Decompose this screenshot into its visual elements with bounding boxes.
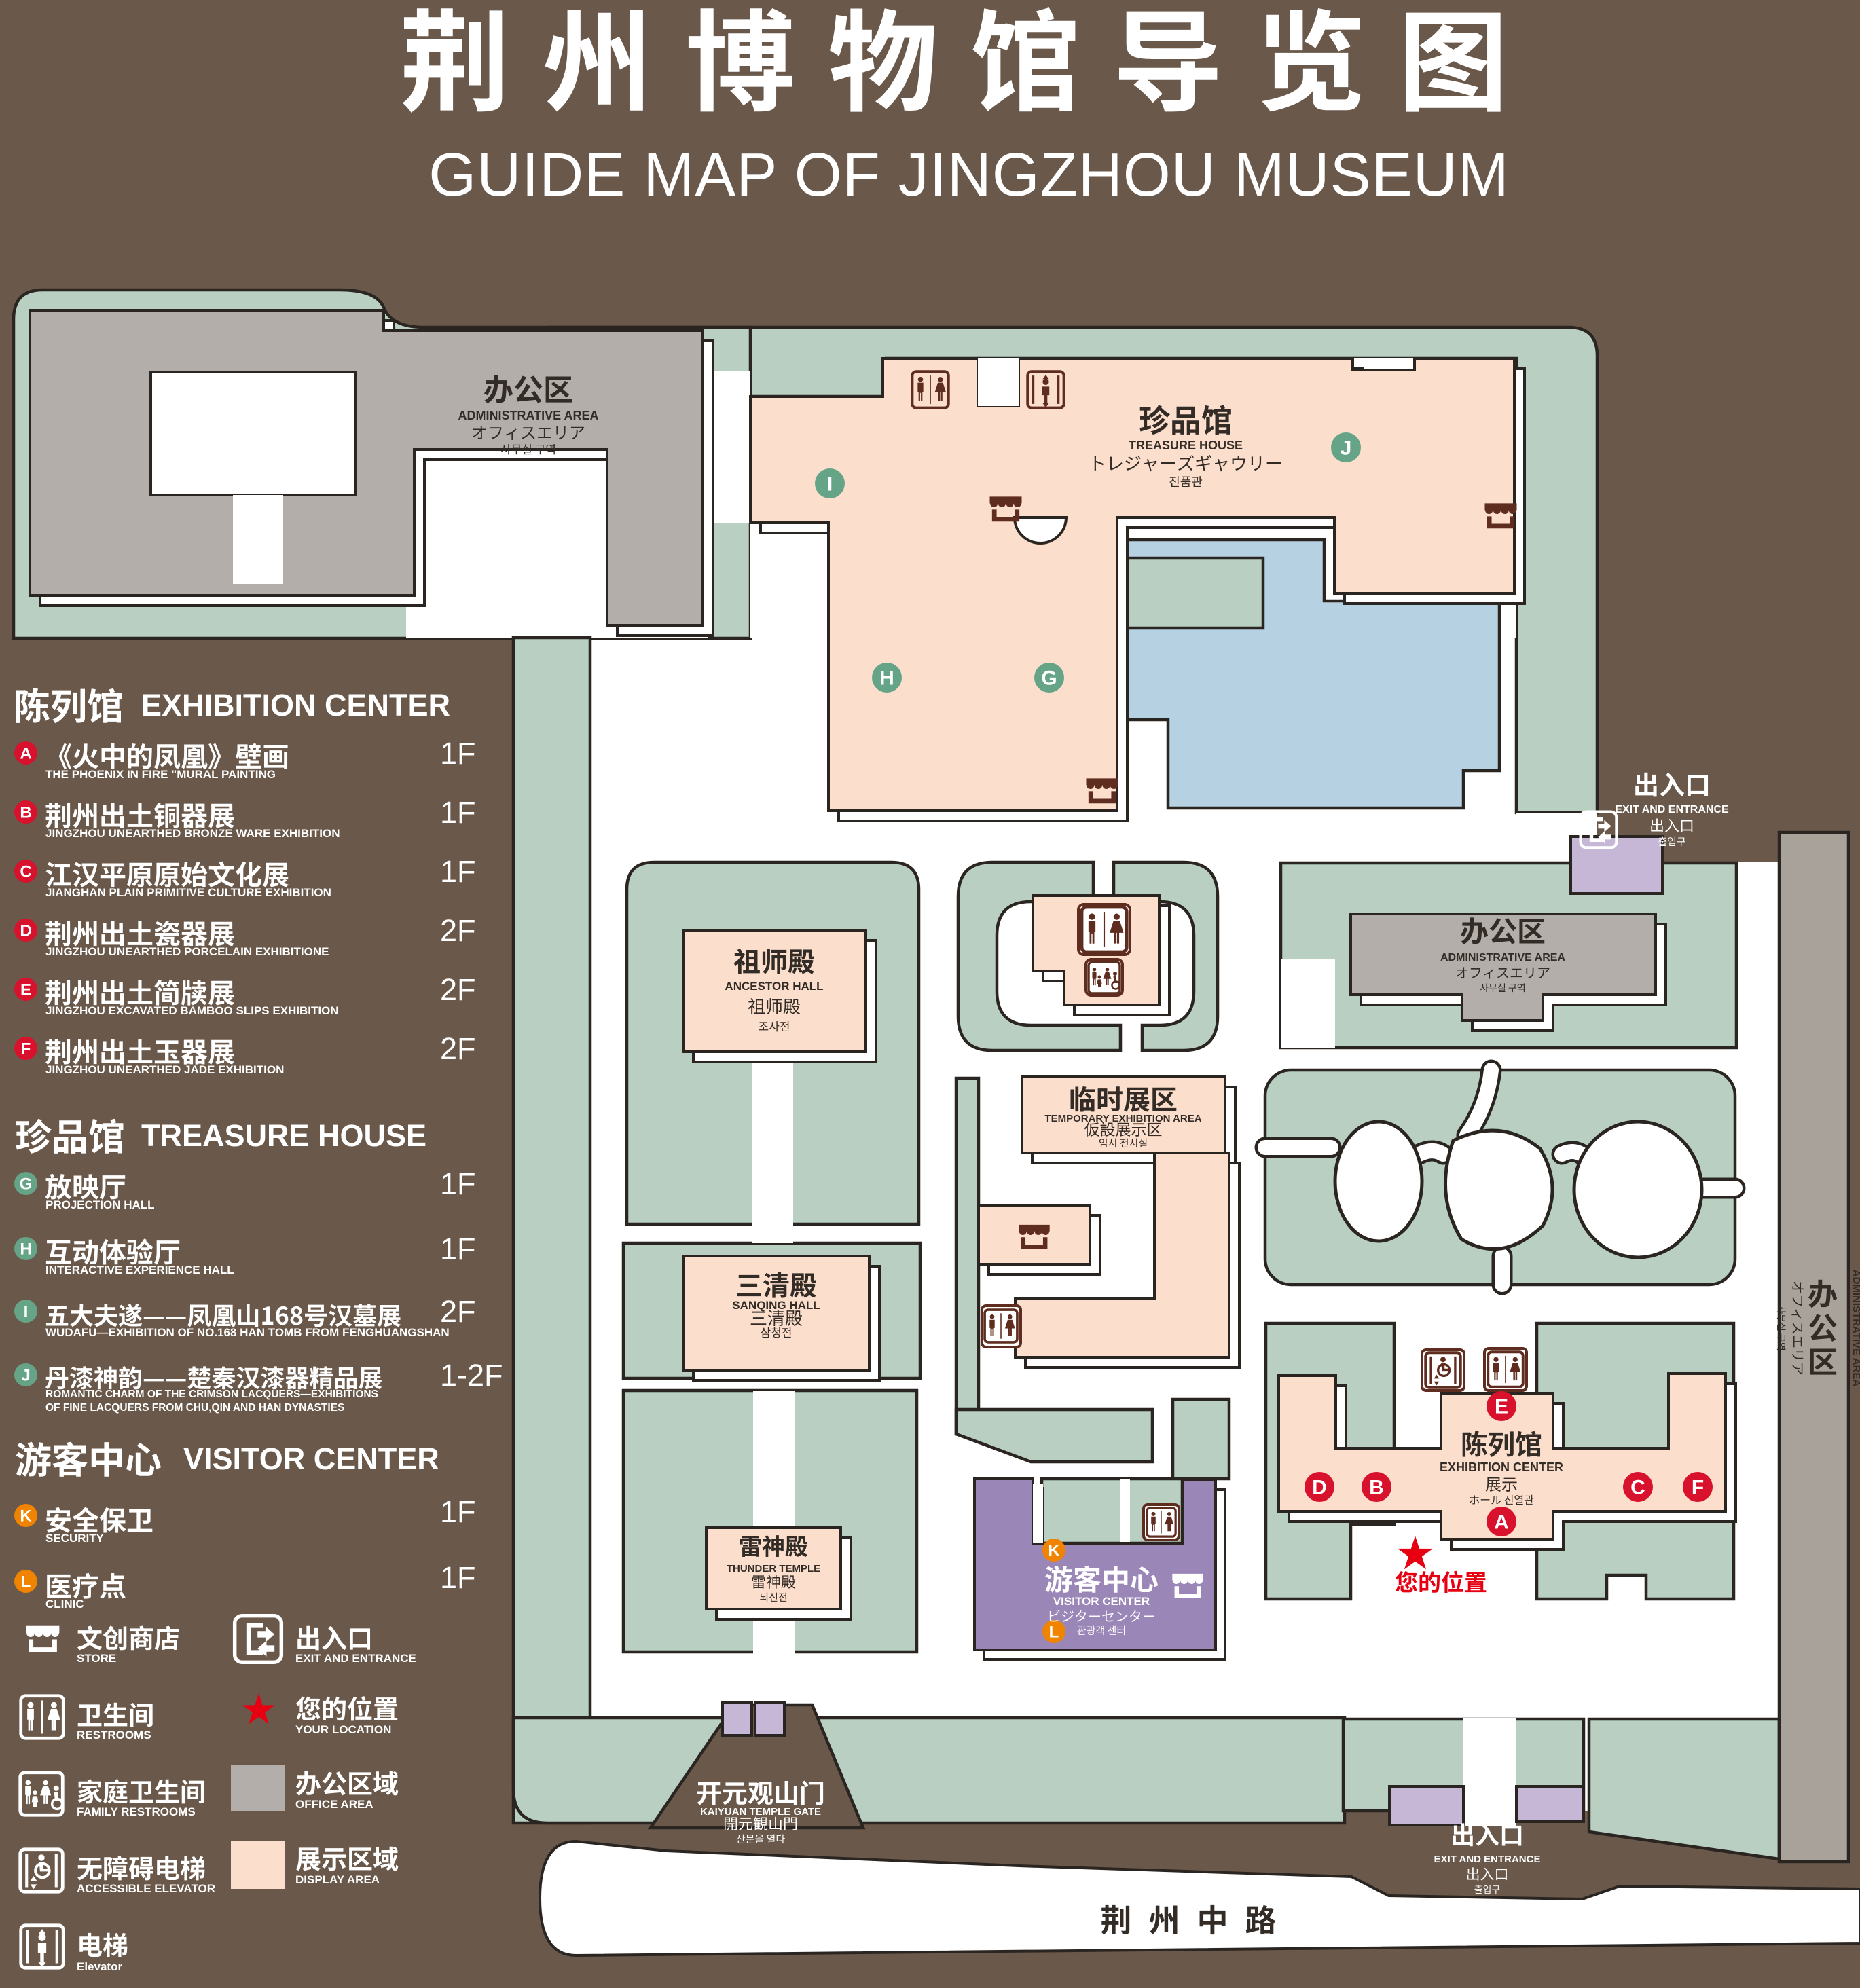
svg-text:THE PHOENIX IN FIRE "MURAL PAI: THE PHOENIX IN FIRE "MURAL PAINTING (45, 768, 276, 781)
svg-text:GUIDE MAP OF JINGZHOU MUSEUM: GUIDE MAP OF JINGZHOU MUSEUM (428, 141, 1509, 209)
svg-text:ANCESTOR HALL: ANCESTOR HALL (725, 980, 823, 993)
svg-text:K: K (1048, 1542, 1060, 1560)
svg-text:SANQING HALL: SANQING HALL (732, 1299, 820, 1312)
svg-text:TREASURE HOUSE: TREASURE HOUSE (141, 1118, 426, 1153)
svg-text:C: C (1630, 1477, 1645, 1499)
svg-text:WUDAFU—EXHIBITION OF NO.168 HA: WUDAFU—EXHIBITION OF NO.168 HAN TOMB FRO… (45, 1326, 450, 1339)
svg-text:1-2F: 1-2F (440, 1358, 503, 1393)
svg-text:FAMILY RESTROOMS: FAMILY RESTROOMS (77, 1805, 196, 1818)
svg-text:1F: 1F (440, 1560, 476, 1595)
svg-text:VISITOR CENTER: VISITOR CENTER (183, 1441, 439, 1476)
svg-text:ADMINISTRATIVE AREA: ADMINISTRATIVE AREA (1440, 952, 1565, 963)
svg-text:OF FINE LACQUERS FROM CHU,QIN: OF FINE LACQUERS FROM CHU,QIN AND HAN DY… (45, 1402, 344, 1414)
svg-text:I: I (827, 473, 833, 496)
svg-text:G: G (20, 1175, 33, 1194)
svg-text:J: J (21, 1367, 30, 1385)
svg-text:JINGZHOU UNEARTHED BRONZE WARE: JINGZHOU UNEARTHED BRONZE WARE EXHIBITIO… (45, 827, 340, 840)
svg-text:PROJECTION HALL: PROJECTION HALL (45, 1198, 155, 1211)
svg-text:B: B (20, 804, 31, 822)
svg-text:G: G (1041, 667, 1057, 690)
svg-text:RESTROOMS: RESTROOMS (77, 1729, 151, 1742)
svg-text:KAIYUAN TEMPLE GATE: KAIYUAN TEMPLE GATE (700, 1806, 821, 1818)
svg-text:2F: 2F (440, 913, 476, 948)
svg-text:JINGZHOU EXCAVATED BAMBOO SLIP: JINGZHOU EXCAVATED BAMBOO SLIPS EXHIBITI… (45, 1004, 339, 1017)
svg-text:JIANGHAN PLAIN PRIMITIVE CULTU: JIANGHAN PLAIN PRIMITIVE CULTURE EXHIBIT… (45, 886, 331, 899)
svg-text:ADMINISTRATIVE AREA: ADMINISTRATIVE AREA (1850, 1270, 1860, 1387)
svg-text:H: H (20, 1240, 31, 1259)
svg-text:J: J (1341, 437, 1352, 460)
svg-text:INTERACTIVE EXPERIENCE HALL: INTERACTIVE EXPERIENCE HALL (45, 1264, 234, 1276)
svg-text:SECURITY: SECURITY (45, 1532, 105, 1545)
svg-text:2F: 2F (440, 1294, 476, 1329)
svg-text:D: D (1312, 1477, 1327, 1499)
svg-text:OFFICE AREA: OFFICE AREA (295, 1798, 373, 1811)
svg-text:2F: 2F (440, 972, 476, 1007)
svg-text:I: I (24, 1303, 29, 1321)
svg-text:THUNDER TEMPLE: THUNDER TEMPLE (727, 1563, 820, 1575)
svg-text:1F: 1F (440, 1494, 476, 1529)
svg-text:VISITOR CENTER: VISITOR CENTER (1053, 1595, 1150, 1608)
svg-text:F: F (1692, 1477, 1704, 1499)
svg-text:1F: 1F (440, 1166, 476, 1201)
svg-text:H: H (879, 667, 894, 690)
svg-text:K: K (20, 1507, 32, 1526)
svg-text:1F: 1F (440, 1232, 476, 1266)
svg-text:Elevator: Elevator (77, 1960, 122, 1973)
svg-text:L: L (1049, 1623, 1059, 1642)
svg-text:1F: 1F (440, 736, 476, 771)
svg-text:1F: 1F (440, 795, 476, 830)
svg-text:DISPLAY AREA: DISPLAY AREA (295, 1873, 380, 1886)
svg-text:C: C (20, 863, 31, 881)
svg-text:ROMANTIC CHARM OF THE CRIMSON: ROMANTIC CHARM OF THE CRIMSON LACQUERS—E… (45, 1388, 378, 1400)
svg-text:ACCESSIBLE ELEVATOR: ACCESSIBLE ELEVATOR (77, 1882, 215, 1895)
svg-text:L: L (21, 1573, 31, 1591)
svg-text:EXHIBITION CENTER: EXHIBITION CENTER (1440, 1460, 1563, 1474)
svg-text:A: A (1494, 1511, 1509, 1534)
svg-text:JINGZHOU UNEARTHED PORCELAIN E: JINGZHOU UNEARTHED PORCELAIN EXHIBITIONE (45, 945, 329, 958)
svg-text:EXIT AND ENTRANCE: EXIT AND ENTRANCE (295, 1652, 416, 1665)
svg-text:1F: 1F (440, 854, 476, 889)
svg-text:E: E (20, 981, 31, 999)
svg-text:B: B (1369, 1477, 1384, 1499)
svg-text:A: A (20, 745, 31, 763)
svg-text:EXIT AND ENTRANCE: EXIT AND ENTRANCE (1434, 1854, 1541, 1865)
svg-text:EXHIBITION CENTER: EXHIBITION CENTER (141, 688, 450, 722)
svg-text:TEMPORARY EXHIBITION AREA: TEMPORARY EXHIBITION AREA (1044, 1113, 1201, 1124)
svg-text:CLINIC: CLINIC (45, 1598, 84, 1610)
svg-text:JINGZHOU UNEARTHED JADE EXHIBI: JINGZHOU UNEARTHED JADE EXHIBITION (45, 1063, 284, 1076)
svg-text:2F: 2F (440, 1031, 476, 1066)
svg-text:TREASURE HOUSE: TREASURE HOUSE (1129, 439, 1243, 452)
svg-text:D: D (20, 922, 31, 940)
svg-text:EXIT AND ENTRANCE: EXIT AND ENTRANCE (1615, 804, 1729, 815)
svg-text:E: E (1495, 1396, 1508, 1418)
svg-text:F: F (21, 1040, 31, 1059)
svg-text:ADMINISTRATIVE AREA: ADMINISTRATIVE AREA (458, 409, 599, 422)
svg-text:YOUR LOCATION: YOUR LOCATION (295, 1723, 391, 1736)
svg-text:STORE: STORE (77, 1652, 116, 1665)
